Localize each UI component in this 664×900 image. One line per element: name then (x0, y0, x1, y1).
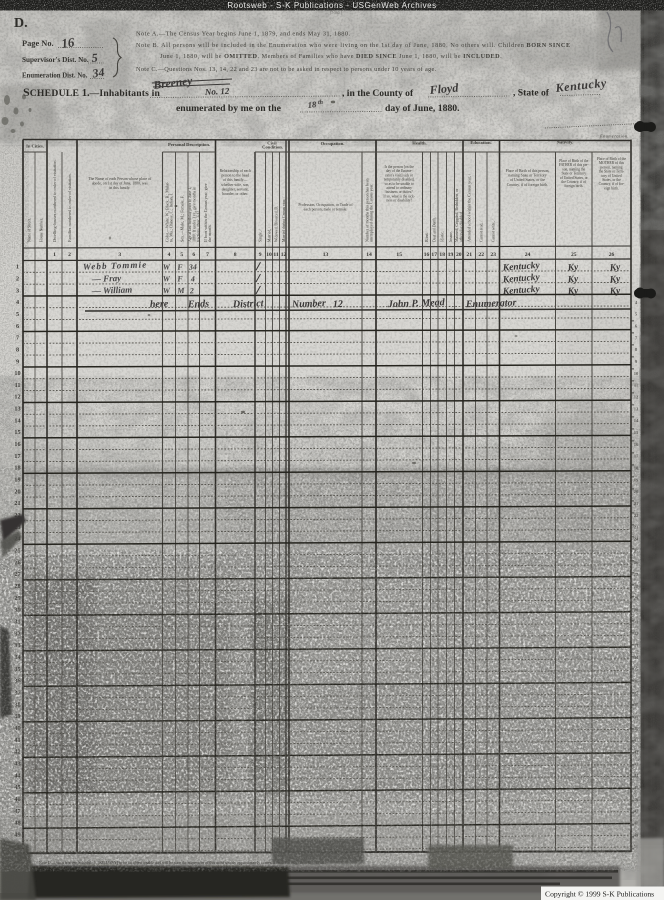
svg-text:15: 15 (634, 430, 639, 435)
svg-text:Copyright © 1999 S-K Publicati: Copyright © 1999 S-K Publications (545, 890, 654, 899)
svg-text:20: 20 (456, 252, 462, 258)
svg-text:F: F (176, 274, 183, 283)
svg-text:18: 18 (634, 466, 639, 471)
svg-text:House Number.: House Number. (40, 218, 44, 242)
svg-text:19: 19 (14, 477, 20, 484)
svg-text:Occupation.: Occupation. (321, 141, 345, 146)
svg-text:4: 4 (168, 252, 171, 258)
svg-text:Nativity.: Nativity. (557, 140, 574, 145)
svg-text:17: 17 (634, 454, 639, 459)
svg-text:Ky: Ky (566, 263, 579, 274)
svg-text:20: 20 (14, 488, 20, 495)
svg-text:24: 24 (634, 537, 639, 542)
svg-text:11: 11 (634, 383, 639, 388)
svg-text:Dwelling-houses numbered in or: Dwelling-houses numbered in order of vis… (52, 159, 57, 242)
svg-text:Place of Birth of theFATHER of: Place of Birth of theFATHER of this per-… (559, 159, 590, 188)
svg-text:24: 24 (525, 252, 531, 258)
svg-text:11: 11 (273, 252, 278, 258)
svg-text:25: 25 (14, 548, 20, 555)
svg-text:15: 15 (14, 429, 20, 436)
svg-text:8: 8 (16, 346, 19, 353)
svg-text:Name of Street.: Name of Street. (28, 218, 32, 242)
svg-text:25: 25 (634, 548, 639, 553)
svg-text:19: 19 (448, 252, 454, 258)
svg-text:23: 23 (634, 525, 639, 530)
svg-text:No. 12: No. 12 (204, 86, 230, 97)
svg-text:Number: Number (291, 298, 326, 310)
svg-text:2: 2 (189, 286, 194, 295)
svg-text:16: 16 (60, 34, 75, 51)
svg-text:34: 34 (90, 65, 105, 81)
svg-text:9: 9 (259, 252, 262, 258)
svg-text:11: 11 (15, 382, 21, 389)
svg-text:Ky: Ky (566, 274, 579, 285)
svg-text:— Fray: — Fray (91, 273, 123, 284)
svg-text:13: 13 (323, 252, 329, 258)
svg-text:D.: D. (14, 16, 28, 31)
svg-text:9: 9 (16, 358, 19, 365)
svg-text:, in the County of: , in the County of (342, 88, 414, 99)
svg-text:2: 2 (68, 252, 71, 258)
svg-text:Ky: Ky (608, 274, 621, 285)
svg-text:Insane.: Insane. (449, 231, 453, 242)
svg-text:21: 21 (14, 500, 20, 507)
svg-text:Education.: Education. (470, 140, 491, 145)
svg-text:26: 26 (609, 252, 615, 258)
svg-text:14: 14 (366, 252, 372, 258)
svg-text:6: 6 (192, 252, 195, 258)
svg-text:18: 18 (439, 252, 445, 258)
svg-text:Ends: Ends (187, 298, 210, 310)
svg-text:Ky: Ky (608, 286, 621, 297)
svg-text:In Cities.: In Cities. (26, 144, 44, 149)
svg-text:SCHEDULE 1.—Inhabitants in: SCHEDULE 1.—Inhabitants in (23, 85, 161, 99)
svg-text:13: 13 (634, 406, 639, 411)
svg-text:10: 10 (634, 371, 639, 376)
svg-text:5: 5 (180, 252, 183, 258)
svg-text:14: 14 (634, 418, 639, 423)
svg-text:22: 22 (478, 252, 484, 258)
svg-text:otherwise disabled.: otherwise disabled. (459, 211, 464, 242)
svg-text:10: 10 (266, 252, 272, 258)
svg-text:12: 12 (634, 395, 639, 400)
svg-text:15: 15 (396, 252, 402, 258)
svg-text:4: 4 (16, 299, 19, 306)
svg-text:2: 2 (16, 275, 19, 282)
svg-text:June 1, 1880, will be OMITTED.: June 1, 1880, will be OMITTED. Members o… (160, 53, 502, 60)
svg-text:Floyd: Floyd (428, 80, 460, 97)
svg-text:Place of Birth of this person,: Place of Birth of this person,naming Sta… (506, 169, 550, 188)
svg-text:th: th (318, 100, 324, 106)
svg-text:1: 1 (16, 264, 19, 271)
svg-text:5: 5 (16, 311, 19, 318)
svg-text:10: 10 (14, 370, 20, 377)
svg-text:day of June, 1880.: day of June, 1880. (385, 103, 460, 114)
svg-text:Health.: Health. (412, 141, 426, 146)
svg-text:20: 20 (634, 489, 639, 494)
svg-text:7: 7 (206, 252, 209, 258)
svg-text:21: 21 (466, 252, 472, 258)
svg-text:Profession, Occupation, or Tra: Profession, Occupation, or Trade ofeach … (298, 203, 353, 213)
svg-text:Note C.—Questions Nos. 13, 14,: Note C.—Questions Nos. 13, 14, 22 and 23… (136, 66, 437, 73)
svg-text:Supervisor's Dist. No.: Supervisor's Dist. No. (22, 56, 89, 64)
svg-text:25: 25 (571, 252, 577, 258)
svg-text:John P. Mead: John P. Mead (387, 297, 446, 310)
svg-text:3: 3 (118, 252, 121, 258)
svg-text:7: 7 (16, 335, 19, 342)
svg-text:21: 21 (634, 501, 639, 506)
svg-text:23: 23 (490, 252, 496, 258)
svg-text:Personal Description.: Personal Description. (168, 142, 210, 147)
svg-text:District: District (232, 298, 265, 310)
svg-text:here: here (150, 299, 169, 311)
svg-text:Deaf and Dumb.: Deaf and Dumb. (433, 217, 437, 242)
svg-text:Is the person [on theday of th: Is the person [on theday of the Enume-ra… (383, 165, 416, 203)
svg-text:Ky: Ky (608, 263, 621, 274)
svg-text:Ky: Ky (566, 286, 579, 297)
svg-text:Note B. All persons will be i: Note B. All persons will be included in … (136, 42, 571, 49)
svg-text:3: 3 (16, 287, 19, 294)
svg-text:Rootsweb - S-K Publications -: Rootsweb - S-K Publications - USGenWeb A… (227, 1, 436, 10)
svg-text:— William: — William (91, 284, 133, 295)
svg-text:Enumerator: Enumerator (465, 297, 517, 310)
svg-text:13: 13 (14, 406, 20, 413)
svg-text:Note A.—The Census Year begins: Note A.—The Census Year begins June 1, 1… (136, 31, 351, 38)
svg-text:4: 4 (190, 274, 195, 283)
svg-text:19: 19 (634, 477, 639, 482)
svg-text:8: 8 (234, 252, 237, 258)
svg-text:5: 5 (91, 51, 98, 65)
svg-text:34: 34 (188, 262, 197, 271)
svg-text:Idiotic.: Idiotic. (441, 231, 445, 242)
svg-text:Page No.: Page No. (22, 39, 54, 48)
svg-text:unemployed during the Census y: unemployed during the Census year. (369, 184, 374, 242)
svg-text:18: 18 (14, 465, 20, 472)
svg-text:1: 1 (53, 252, 56, 258)
svg-text:16: 16 (634, 442, 639, 447)
svg-text:16: 16 (424, 252, 430, 258)
svg-text:6: 6 (16, 323, 19, 330)
svg-text:Enumeration Dist. No.: Enumeration Dist. No. (22, 73, 88, 80)
svg-text:, State of: , State of (513, 88, 550, 99)
svg-text:12: 12 (14, 394, 20, 401)
svg-text:enumerated by me on the: enumerated by me on the (176, 103, 282, 114)
svg-text:17: 17 (431, 252, 437, 258)
svg-text:M: M (176, 286, 185, 295)
svg-text:F: F (176, 262, 183, 271)
svg-text:12: 12 (281, 252, 287, 258)
svg-text:Families numbered in order of: Families numbered in order of visitation… (67, 173, 72, 242)
svg-text:16: 16 (14, 441, 20, 448)
svg-text:Blind.: Blind. (425, 233, 429, 242)
svg-text:12: 12 (333, 299, 343, 310)
svg-text:[7-560.]: [7-560.] (330, 11, 342, 15)
svg-text:Enumeration.: Enumeration. (599, 134, 629, 139)
svg-text:22: 22 (634, 513, 639, 518)
svg-text:the month.: the month. (207, 224, 212, 242)
svg-text:17: 17 (14, 453, 20, 460)
svg-text:Relationship of eachperson to: Relationship of eachperson to the headof… (220, 169, 251, 197)
svg-text:14: 14 (14, 417, 20, 424)
